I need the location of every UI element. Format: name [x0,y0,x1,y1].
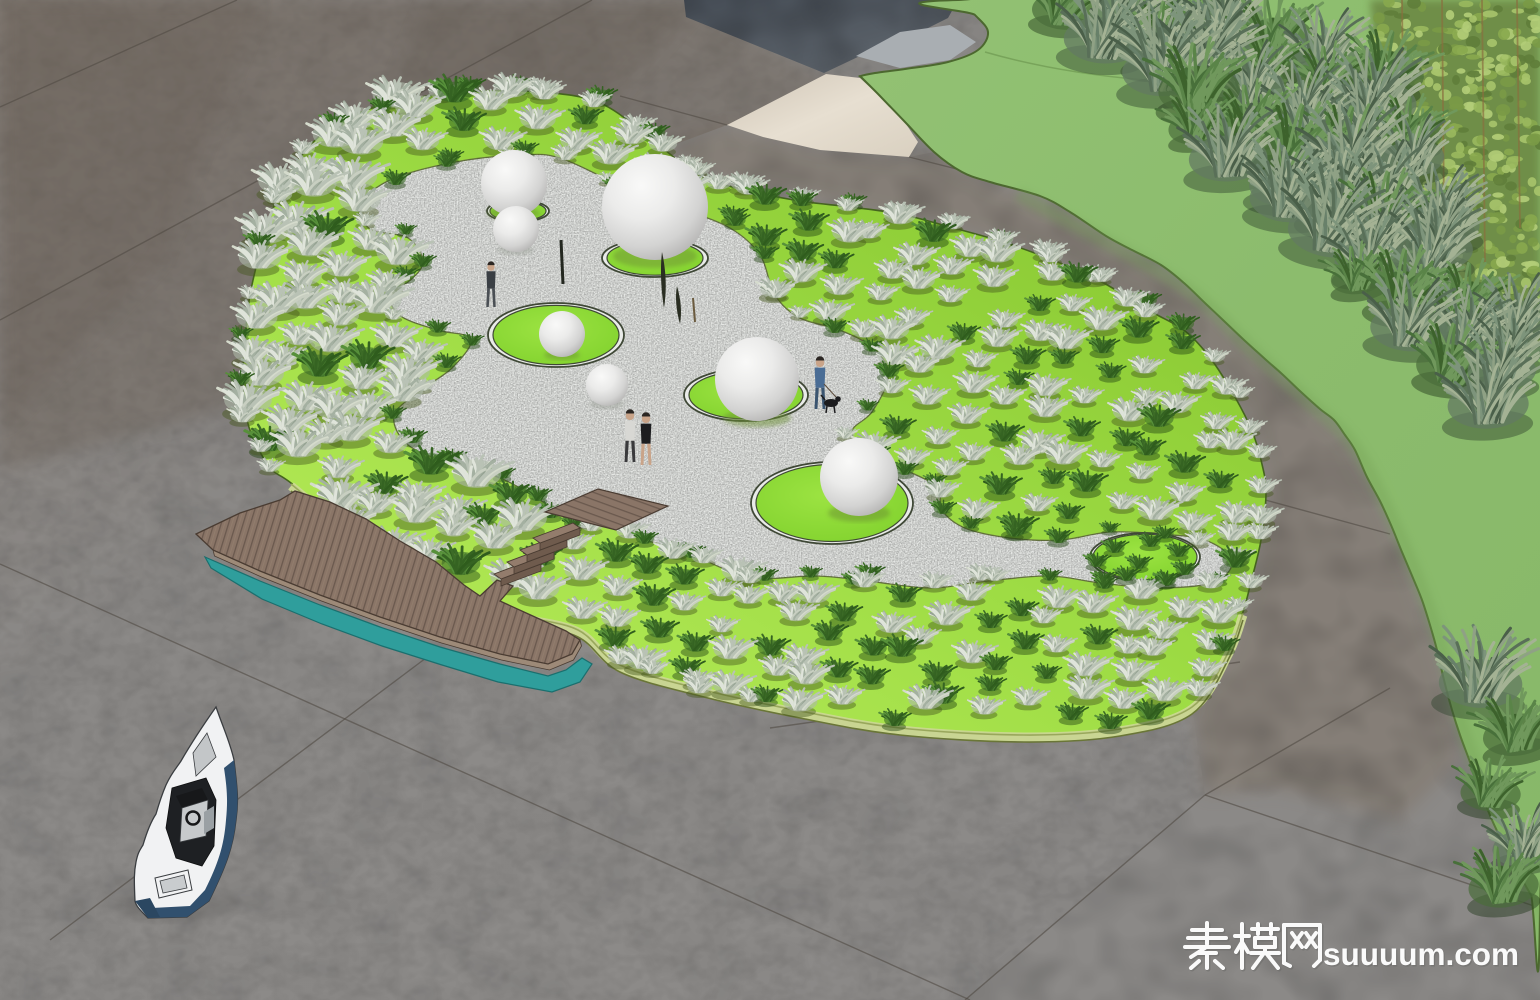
svg-text:suuuum.com: suuuum.com [1323,936,1519,972]
